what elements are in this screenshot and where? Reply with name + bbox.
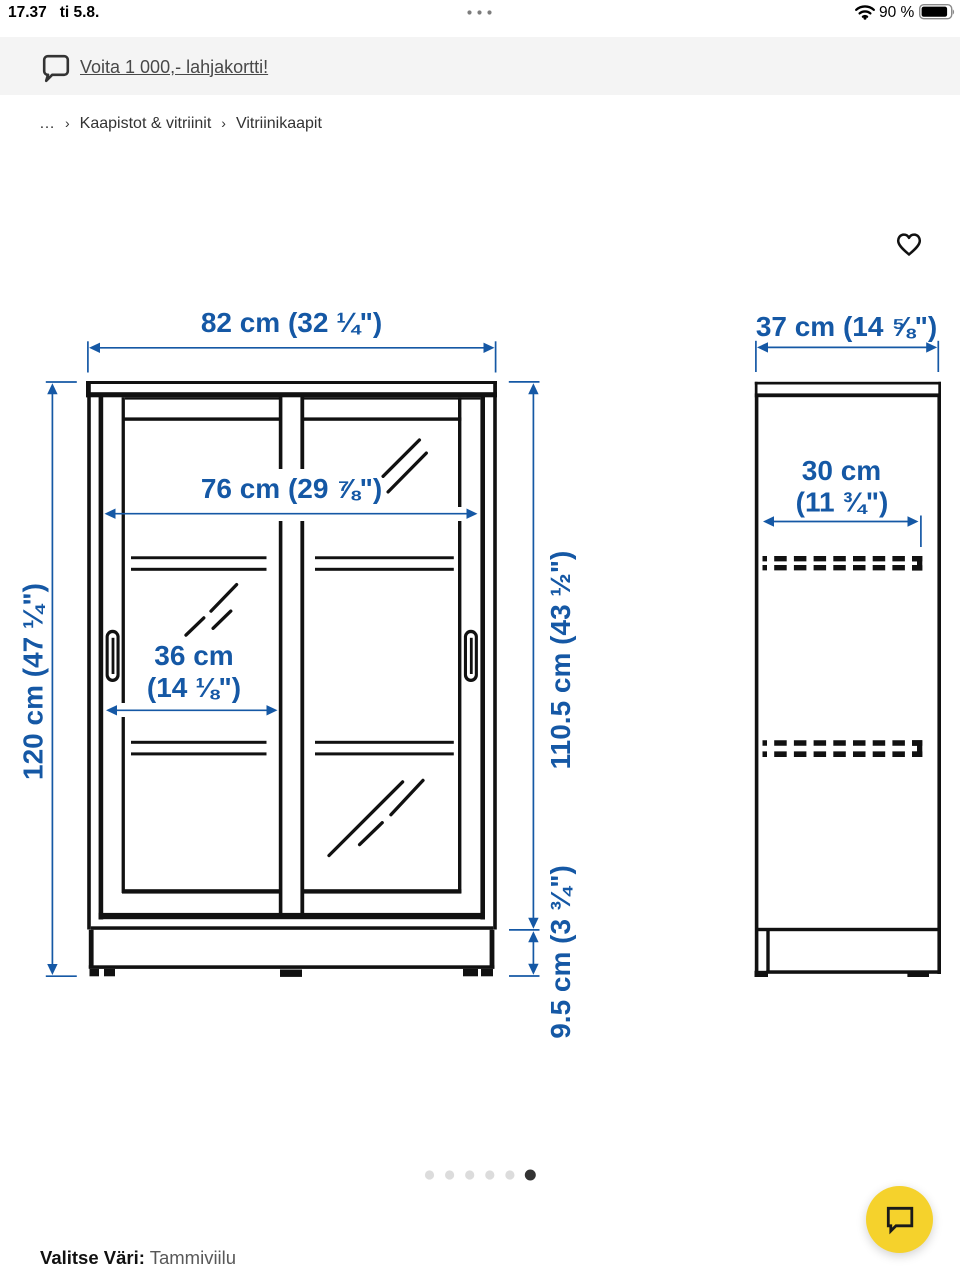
svg-text:9.5 cm (3 ¾"): 9.5 cm (3 ¾") — [545, 865, 576, 1039]
svg-text:(14 ⅛"): (14 ⅛") — [147, 672, 241, 703]
svg-text:110.5 cm (43 ½"): 110.5 cm (43 ½") — [545, 551, 576, 770]
svg-text:(11 ¾"): (11 ¾") — [796, 487, 889, 518]
svg-text:120 cm (47 ¼"): 120 cm (47 ¼") — [18, 583, 49, 780]
svg-text:76 cm (29 ⅞"): 76 cm (29 ⅞") — [201, 473, 382, 504]
svg-text:37 cm (14 ⅝"): 37 cm (14 ⅝") — [756, 311, 937, 342]
svg-text:82 cm (32 ¼"): 82 cm (32 ¼") — [201, 307, 382, 338]
svg-text:30 cm: 30 cm — [802, 455, 881, 486]
svg-text:36 cm: 36 cm — [154, 640, 233, 671]
